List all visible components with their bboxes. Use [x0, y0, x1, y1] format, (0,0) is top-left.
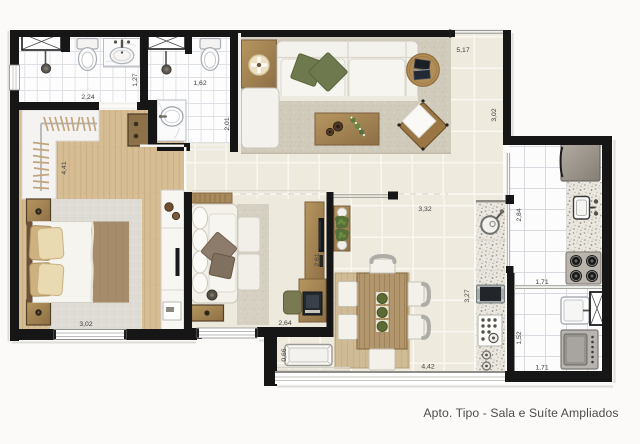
svg-text:5,17: 5,17: [456, 47, 469, 54]
svg-text:0,66: 0,66: [281, 348, 288, 361]
svg-text:2,61: 2,61: [314, 253, 321, 266]
svg-text:1,71: 1,71: [535, 365, 548, 372]
svg-text:2,01: 2,01: [224, 117, 231, 130]
svg-text:4,42: 4,42: [421, 364, 434, 371]
svg-text:3,02: 3,02: [79, 321, 92, 328]
svg-text:1,62: 1,62: [193, 80, 206, 87]
svg-text:3,02: 3,02: [491, 108, 498, 121]
svg-text:1,27: 1,27: [132, 73, 139, 86]
svg-text:2,84: 2,84: [516, 208, 523, 221]
svg-text:4,41: 4,41: [61, 161, 68, 174]
svg-text:Apto. Tipo - Sala e Suíte Ampl: Apto. Tipo - Sala e Suíte Ampliados: [423, 406, 618, 420]
svg-text:1,52: 1,52: [516, 331, 523, 344]
svg-text:1,71: 1,71: [535, 279, 548, 286]
svg-text:3,32: 3,32: [418, 206, 431, 213]
svg-text:3,27: 3,27: [464, 289, 471, 302]
svg-text:2,64: 2,64: [278, 320, 291, 327]
svg-text:2,24: 2,24: [81, 94, 94, 101]
